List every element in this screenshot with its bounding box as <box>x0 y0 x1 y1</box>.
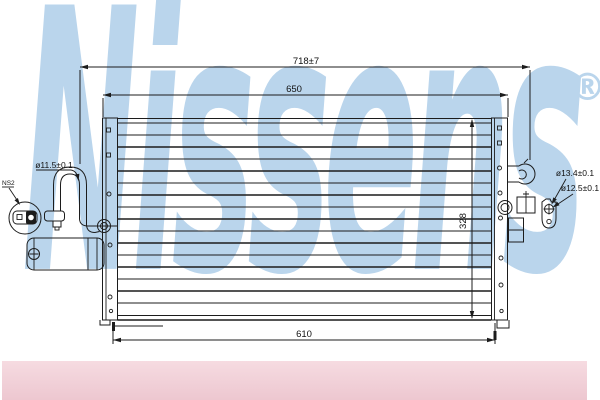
left-port-diameter-label: ø11.5±0.1 <box>35 160 73 170</box>
right-port-inner-label: ø12.5±0.1 <box>561 183 599 193</box>
dim-total-width: 718±7 <box>80 56 530 164</box>
right-port-outer-label: ø13.4±0.1 <box>556 168 594 178</box>
left-mount-detail-circle <box>9 202 41 234</box>
left-note-label: NS2 <box>2 180 20 205</box>
product-drawing-canvas: Nissens ® 718±7 650 6 <box>0 0 600 400</box>
outlet-hook-pipe <box>508 159 536 184</box>
dim-lower-width: 610 <box>113 323 495 344</box>
receiver-drier <box>27 238 104 270</box>
condenser-line-drawing: 718±7 650 610 328 <box>0 0 600 400</box>
dim-lower-width-label: 610 <box>296 329 312 340</box>
footer-accent-bar <box>2 361 587 400</box>
core-assembly <box>118 119 492 321</box>
inlet-pipe-assembly <box>45 167 118 233</box>
port-label-12: ø12.5±0.1 <box>553 183 600 208</box>
dim-upper-width-label: 650 <box>286 84 302 95</box>
left-header <box>103 118 118 320</box>
dim-core-height-label: 328 <box>458 213 469 229</box>
right-header <box>492 118 508 320</box>
dim-upper-width: 650 <box>103 84 508 117</box>
right-port-bracket <box>542 199 556 228</box>
left-note-text: NS2 <box>2 180 15 187</box>
port-label-11: ø11.5±0.1 <box>35 160 79 181</box>
dim-total-width-label: 718±7 <box>293 56 319 67</box>
right-fitting-block <box>498 191 535 242</box>
